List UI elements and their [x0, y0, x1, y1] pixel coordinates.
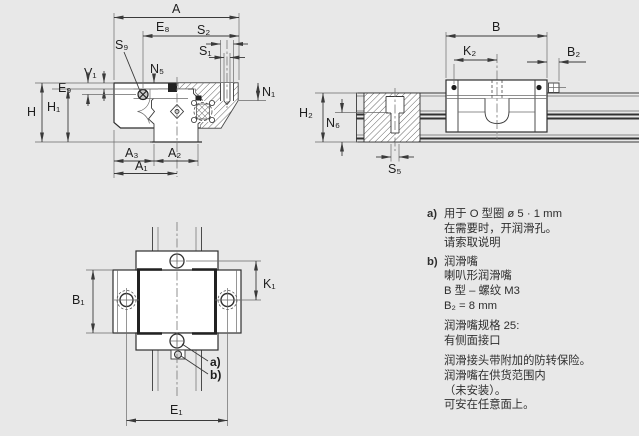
- note-a-line: 在需要时，开润滑孔。: [444, 222, 562, 237]
- note-a-line: 请索取说明: [444, 236, 562, 251]
- view-cross-section: A E₈ S₂ S₁ N₁ S₉ V₁ E₉ N₅ H: [27, 2, 275, 178]
- dim-label-K2: K₂: [463, 44, 476, 58]
- dim-label-A1: A₁: [135, 159, 148, 173]
- dim-label-B1: B₁: [72, 293, 85, 307]
- catalog-drawing-page: A E₈ S₂ S₁ N₁ S₉ V₁ E₉ N₅ H: [0, 0, 639, 436]
- view-top: a) b) B₁ K₁ E₁: [72, 222, 276, 426]
- callout-b: b): [210, 368, 221, 382]
- lube-port-screw: [138, 90, 148, 100]
- dim-label-S1: S₁: [199, 44, 212, 58]
- note-b-line: 润滑嘴: [444, 255, 520, 270]
- dim-label-N1: N₁: [262, 85, 275, 99]
- dim-label-N5: N₅: [150, 62, 164, 76]
- dim-label-H1: H₁: [47, 100, 60, 114]
- dim-label-B2: B₂: [567, 45, 580, 59]
- dim-label-E1: E₁: [170, 403, 183, 417]
- note-b-line: B 型 – 螺纹 M3: [444, 284, 520, 299]
- note-b-line: B₂ = 8 mm: [444, 299, 520, 314]
- note-b-line: 喇叭形润滑嘴: [444, 269, 520, 284]
- lube-channel-plug: [168, 84, 177, 93]
- note-a-marker: a): [427, 207, 444, 251]
- note-b-marker: b): [427, 255, 444, 313]
- dim-label-K1: K₁: [263, 277, 276, 291]
- dim-label-S9: S₉: [115, 38, 128, 52]
- dim-label-S2: S₂: [197, 23, 210, 37]
- note-info-line: 润滑接头带附加的防转保险。: [444, 354, 635, 369]
- rail-section-hole: [364, 88, 420, 151]
- seal-detail: [196, 96, 202, 101]
- note-b: b) 润滑嘴 喇叭形润滑嘴 B 型 – 螺纹 M3 B₂ = 8 mm: [427, 255, 635, 313]
- note-info-line: 润滑嘴在供货范围内: [444, 369, 635, 384]
- view-side: B K₂ B₂ H₂ N₆ S₅: [299, 20, 639, 176]
- dim-label-H: H: [27, 105, 36, 119]
- dim-label-A: A: [172, 2, 181, 16]
- dim-label-A2: A₂: [168, 146, 181, 160]
- note-a-line: 用于 O 型圈 ø 5 · 1 mm: [444, 207, 562, 222]
- lube-port-dot-left: [451, 85, 456, 90]
- dim-label-B: B: [492, 20, 500, 34]
- note-info-line: （未安装）。: [444, 384, 635, 399]
- dim-label-V1: V₁: [84, 66, 97, 80]
- dim-label-N6: N₆: [326, 116, 340, 130]
- note-spec-line: 润滑嘴规格 25:: [444, 319, 635, 334]
- dim-label-A3: A₃: [125, 146, 138, 160]
- annotation-notes: a) 用于 O 型圈 ø 5 · 1 mm 在需要时，开润滑孔。 请索取说明 b…: [427, 207, 635, 413]
- dim-label-E8: E₈: [156, 20, 170, 34]
- dim-label-H2: H₂: [299, 106, 313, 120]
- runner-block-side: [446, 54, 566, 140]
- note-info: 润滑接头带附加的防转保险。 润滑嘴在供货范围内 （未安装）。 可安在任意面上。: [444, 354, 635, 412]
- lube-port-dot-right: [536, 85, 541, 90]
- note-a: a) 用于 O 型圈 ø 5 · 1 mm 在需要时，开润滑孔。 请索取说明: [427, 207, 635, 251]
- dim-label-S5: S₅: [388, 162, 401, 176]
- note-info-line: 可安在任意面上。: [444, 398, 635, 413]
- note-spec-line: 有侧面接口: [444, 334, 635, 349]
- callout-a: a): [210, 355, 221, 369]
- note-spec: 润滑嘴规格 25: 有侧面接口: [444, 319, 635, 348]
